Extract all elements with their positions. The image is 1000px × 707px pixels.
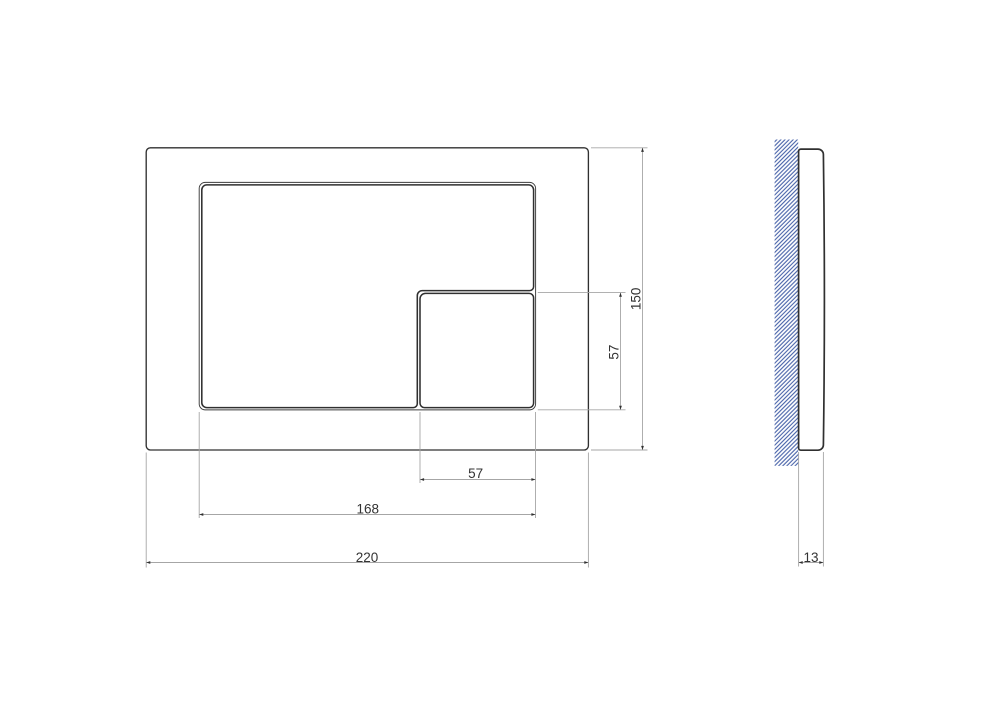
svg-text:168: 168 [357,502,380,517]
svg-text:57: 57 [468,466,483,481]
svg-text:13: 13 [803,550,818,565]
svg-text:220: 220 [356,550,379,565]
svg-text:150: 150 [629,288,644,311]
svg-text:57: 57 [606,345,621,360]
